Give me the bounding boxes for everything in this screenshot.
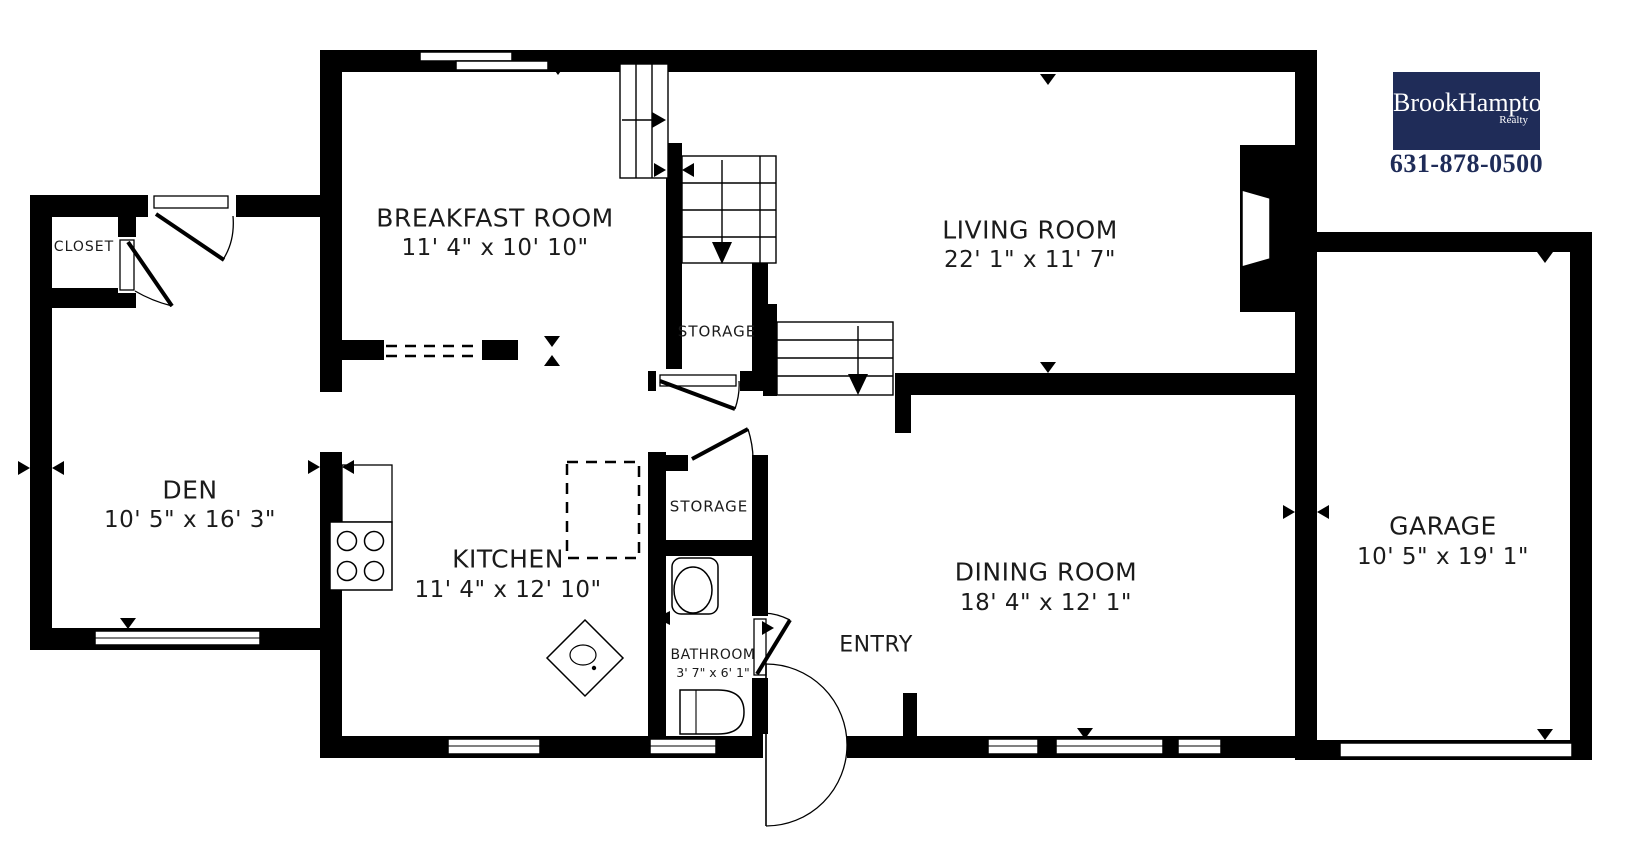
room-label-dining: DINING ROOM (955, 559, 1138, 588)
fireplace-firebox (1242, 190, 1270, 267)
room-label-closet: CLOSET (54, 239, 114, 255)
marker-right-den-wall (18, 461, 30, 475)
marker-left-den-wall (52, 461, 64, 475)
door-gap-storage-upper (656, 369, 740, 393)
room-dims-dining: 18' 4" x 12' 1" (960, 590, 1132, 616)
door-leaf-den-top (156, 214, 224, 260)
floor-plan: CLOSET BREAKFAST ROOM 11' 4" x 10' 10" L… (0, 0, 1650, 853)
refrigerator-dashed (567, 462, 639, 558)
kitchen-counter (342, 465, 392, 522)
windows (95, 52, 1572, 757)
wall-entry-left-upper (752, 556, 768, 618)
room-label-storage-upper: STORAGE (678, 323, 756, 340)
wall-entry-stub (903, 693, 917, 738)
door-arc-entry-in (766, 664, 847, 745)
garage-door (1340, 743, 1572, 757)
wall-central (666, 143, 682, 392)
marker-right-kitchen-wall (308, 460, 320, 474)
wall-living-bottom-stub (895, 395, 911, 433)
marker-up-opening (544, 355, 560, 366)
door-gap-closet (118, 237, 136, 293)
wall-divider-stub-left (342, 340, 384, 360)
wall-garage-top (1317, 232, 1592, 252)
wall-divider-stub-right (482, 340, 518, 360)
room-dims-bathroom: 3' 7" x 6' 1" (676, 666, 749, 680)
marker-down-living-bottom (1040, 362, 1056, 373)
marker-down-garage-top (1537, 252, 1553, 263)
dashed-openings (386, 346, 639, 558)
marker-down-living-top (1040, 74, 1056, 85)
door-arc-den-top (224, 216, 233, 258)
room-dims-living: 22' 1" x 11' 7" (944, 247, 1116, 273)
room-dims-kitchen: 11' 4" x 12' 10" (414, 577, 601, 603)
room-label-storage-lower: STORAGE (670, 498, 748, 515)
marker-right-garage-left-wall (1283, 505, 1295, 519)
wall-stairs-left-stub (763, 304, 777, 396)
brokerage-phone: 631-878-0500 (1385, 149, 1548, 179)
window-slider-top-a (420, 52, 512, 61)
room-dims-den: 10' 5" x 16' 3" (104, 507, 276, 533)
wall-bath-left (648, 452, 666, 758)
stairs-living-down (777, 322, 893, 395)
room-label-kitchen: KITCHEN (452, 546, 564, 575)
door-gap-entry (763, 734, 847, 760)
room-dims-garage: 10' 5" x 19' 1" (1357, 544, 1529, 570)
room-label-bathroom: BATHROOM (670, 647, 755, 663)
wall-breakfast-left (320, 50, 342, 392)
toilet (672, 558, 718, 614)
room-dims-breakfast: 11' 4" x 10' 10" (401, 235, 588, 261)
marker-down-den-window (120, 618, 136, 629)
wall-den-left (30, 195, 52, 650)
room-label-living: LIVING ROOM (942, 217, 1118, 246)
walls (30, 50, 1592, 760)
window-slider-top-b (456, 61, 548, 70)
room-label-garage: GARAGE (1389, 513, 1497, 542)
brokerage-logo: BrookHampton Realty (1393, 72, 1540, 150)
marker-down-opening (544, 336, 560, 347)
marker-left-garage-left-wall (1317, 505, 1329, 519)
wall-storage-lower-bottom (648, 540, 768, 556)
kitchen-corner-sink (547, 620, 623, 696)
stove (330, 522, 392, 590)
wall-kitchen-left (320, 452, 342, 758)
room-label-den: DEN (162, 477, 217, 506)
room-label-breakfast: BREAKFAST ROOM (376, 205, 613, 234)
room-label-entry: ENTRY (839, 632, 913, 657)
wall-living-bottom (895, 373, 1295, 395)
marker-down-garage-bottom (1537, 729, 1553, 740)
bathroom-sink (680, 690, 744, 734)
